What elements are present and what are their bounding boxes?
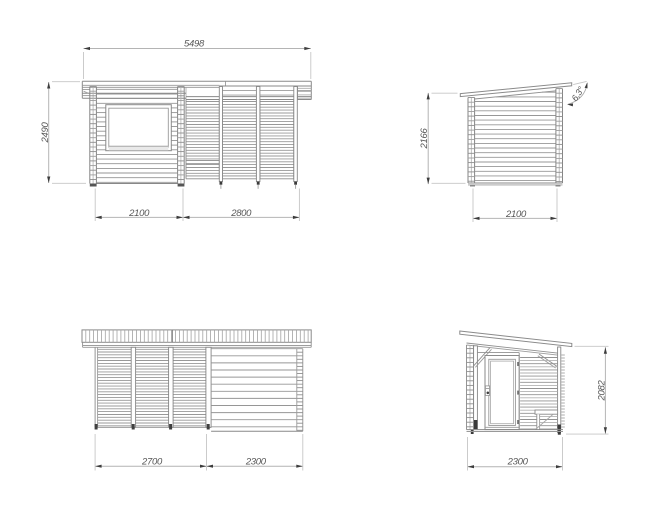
svg-text:6,3°: 6,3° [570,84,587,103]
svg-text:5498: 5498 [184,39,205,50]
svg-text:2100: 2100 [128,208,150,219]
svg-text:2082: 2082 [596,380,607,402]
svg-text:2800: 2800 [230,208,252,219]
svg-text:2300: 2300 [245,457,267,468]
svg-text:2300: 2300 [507,457,529,468]
svg-text:2490: 2490 [40,122,51,144]
svg-text:2100: 2100 [505,209,527,220]
svg-text:2166: 2166 [419,128,430,150]
svg-text:2700: 2700 [141,457,163,468]
